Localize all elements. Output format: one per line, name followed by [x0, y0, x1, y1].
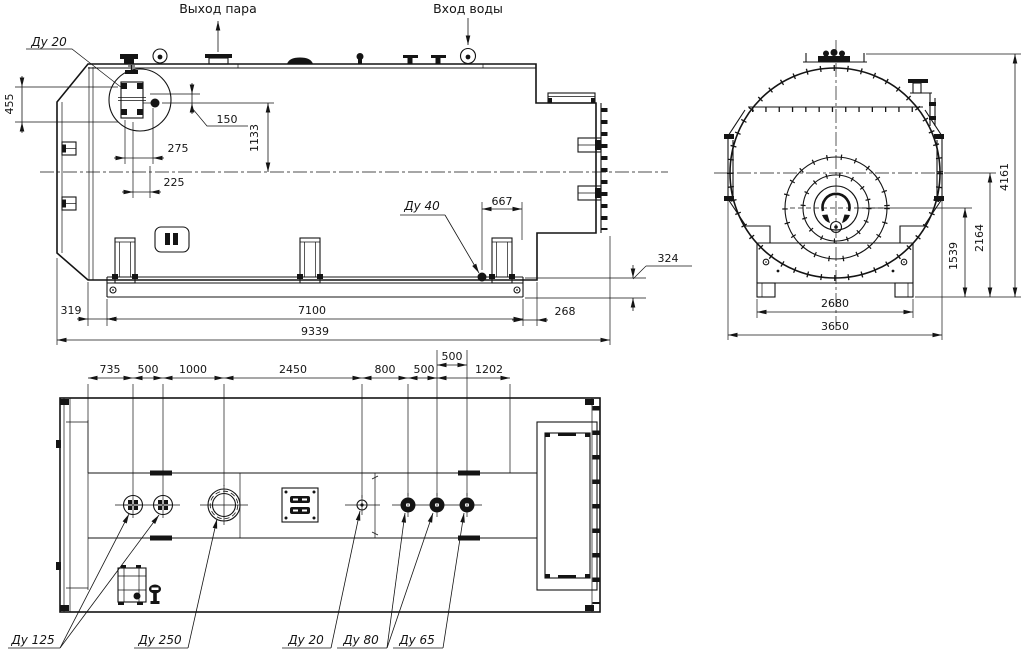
dn80-nozzle	[430, 493, 445, 517]
steam-outlet-nozzle	[205, 54, 232, 64]
dimension-275: 275	[114, 108, 189, 164]
dn20-bottom-label: Ду 20	[287, 633, 324, 647]
nozzle-leader-labels: Ду 125 Ду 250 Ду 20 Ду 80 Ду 65	[8, 511, 464, 648]
manhole-dome	[287, 58, 313, 65]
steam-outlet-label: Выход пара	[179, 1, 257, 16]
top-fitting	[803, 49, 867, 62]
dn125-label: Ду 125	[10, 633, 54, 647]
dimension-1133: 1133	[248, 103, 268, 172]
dimension-667: 667	[482, 195, 522, 270]
small-nozzle-icon	[357, 53, 364, 64]
dn65-nozzle	[460, 493, 475, 517]
t-nozzle-icon	[431, 55, 446, 64]
front-base	[757, 243, 913, 297]
handhole-plate	[282, 488, 318, 522]
dimension-455: 455	[3, 76, 118, 133]
dim-3650: 3650	[821, 320, 849, 333]
dim-9339: 9339	[301, 325, 329, 338]
dim-2450: 2450	[279, 363, 307, 376]
dim-4161: 4161	[998, 163, 1011, 191]
dimension-4161: 4161	[866, 54, 1021, 297]
dim-800: 800	[375, 363, 396, 376]
support-bracket	[112, 238, 138, 283]
dim-2680: 2680	[821, 297, 849, 310]
dim-500a: 500	[138, 363, 159, 376]
safety-valve-icon	[120, 54, 138, 64]
dn125-nozzle	[124, 492, 143, 518]
dimension-2164: 2164	[944, 173, 996, 297]
dimension-2680: 2680	[757, 297, 913, 318]
dim-1133: 1133	[248, 124, 261, 152]
dimension-1539: 1539	[858, 208, 1021, 297]
dim-1000: 1000	[179, 363, 207, 376]
side-view: Выход пара Вход воды Ду 20 455 150	[3, 1, 692, 345]
rear-hatch	[537, 422, 597, 590]
dim-735: 735	[100, 363, 121, 376]
dim-268: 268	[555, 305, 576, 318]
drawing-sheet: Выход пара Вход воды Ду 20 455 150	[0, 0, 1024, 656]
dim-7100: 7100	[298, 304, 326, 317]
plan-nozzles	[115, 485, 482, 525]
water-inlet-annotation: Вход воды	[433, 1, 503, 45]
dim-667: 667	[492, 195, 513, 208]
saddle-supports	[112, 238, 515, 283]
dn125-nozzle	[154, 492, 173, 518]
plan-chain-dimensions: 735 500 1000 2450 800 500 1202 500	[88, 350, 510, 498]
dn80-nozzle	[401, 493, 416, 517]
rear-top-hatch	[548, 93, 595, 103]
dimension-7100: 7100	[107, 304, 523, 319]
dim-1539: 1539	[947, 242, 960, 270]
dim-1202: 1202	[475, 363, 503, 376]
dim-275: 275	[168, 142, 189, 155]
key-icon	[149, 585, 161, 605]
boiler-drawing: Выход пара Вход воды Ду 20 455 150	[0, 0, 1024, 656]
valve-assembly-icon	[118, 565, 146, 605]
dn80-label: Ду 80	[342, 633, 379, 647]
dn40-label: Ду 40	[403, 199, 440, 213]
front-view: 2680 3650 1539 2164 4161	[714, 40, 1021, 340]
rear-flange	[578, 103, 604, 233]
dim-500b: 500	[414, 363, 435, 376]
dn250-nozzle	[208, 485, 240, 525]
casing-flats	[724, 110, 944, 243]
dn20-detail: Ду 20	[26, 35, 171, 131]
dimension-324: 324	[525, 252, 692, 311]
support-bracket	[489, 238, 515, 283]
top-fittings	[120, 49, 476, 65]
steam-outlet-annotation: Выход пара	[179, 1, 257, 52]
dim-150: 150	[217, 113, 238, 126]
support-bracket	[297, 238, 323, 283]
dim-319: 319	[61, 304, 82, 317]
dn20-detail-label: Ду 20	[30, 35, 67, 49]
dim-225: 225	[164, 176, 185, 189]
dn20-port	[151, 99, 160, 108]
dn250-label: Ду 250	[137, 633, 182, 647]
dn65-label: Ду 65	[398, 633, 435, 647]
t-nozzle-icon	[403, 55, 418, 64]
dimension-9339: 9339	[57, 236, 610, 345]
water-inlet-lug-icon	[461, 49, 476, 64]
front-plate-brackets	[62, 142, 76, 210]
dim-455: 455	[3, 94, 16, 115]
dim-2164: 2164	[973, 224, 986, 252]
inspection-plate	[155, 227, 189, 252]
dn40-drain: Ду 40	[400, 199, 487, 282]
plan-view: 735 500 1000 2450 800 500 1202 500 Ду 12…	[8, 350, 600, 648]
lifting-lug-icon	[153, 49, 167, 63]
water-inlet-label: Вход воды	[433, 1, 503, 16]
dim-500-offset: 500	[442, 350, 463, 363]
dim-324: 324	[658, 252, 679, 265]
